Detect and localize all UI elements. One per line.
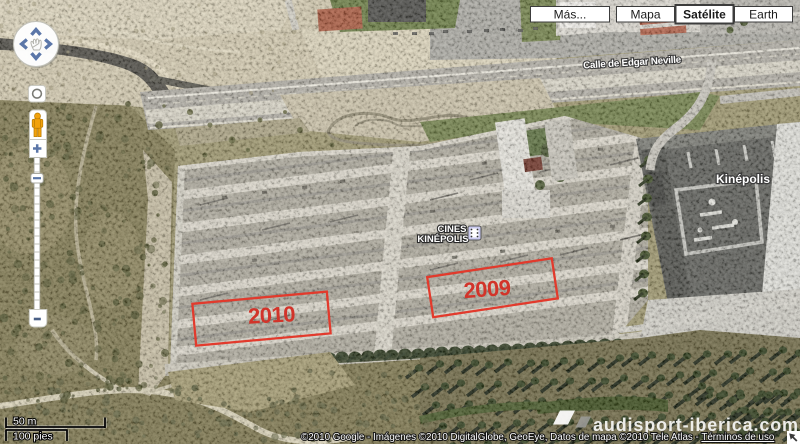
svg-text:50 m: 50 m (13, 416, 37, 428)
svg-text:©2010 Google - Imágenes ©2010: ©2010 Google - Imágenes ©2010 DigitalGlo… (301, 432, 775, 443)
svg-text:2010: 2010 (247, 301, 295, 328)
svg-text:100 pies: 100 pies (13, 431, 53, 443)
svg-text:Mapa: Mapa (630, 7, 660, 21)
svg-text:Kinépolis: Kinépolis (716, 172, 770, 186)
svg-text:Más...: Más... (554, 7, 587, 21)
svg-text:Earth: Earth (749, 7, 778, 21)
svg-text:KINÉPOLIS: KINÉPOLIS (417, 234, 468, 245)
svg-text:Satélite: Satélite (683, 7, 726, 21)
svg-text:2009: 2009 (463, 275, 512, 303)
